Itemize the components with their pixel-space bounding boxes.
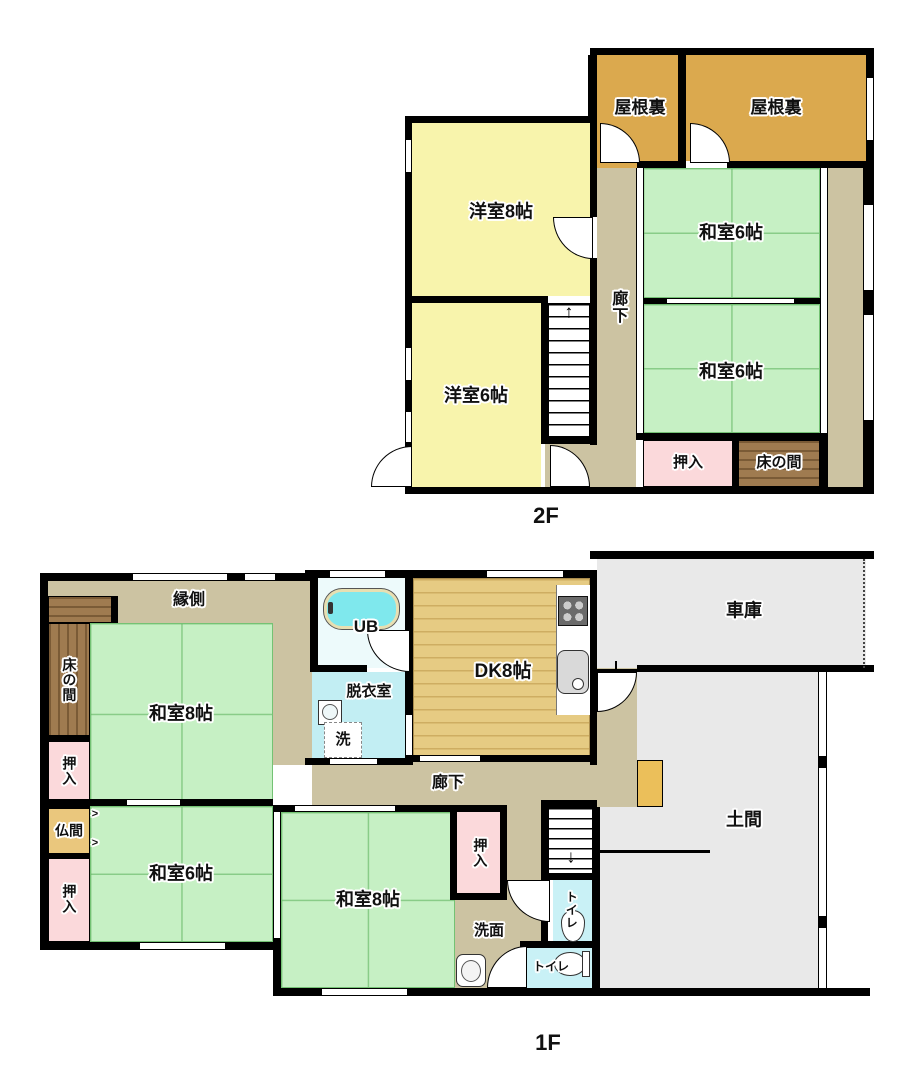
room-label-toilet-lower: トイレ xyxy=(533,961,569,974)
wall xyxy=(818,756,827,768)
room-label-washitsu6-upper: 和室6帖 xyxy=(699,224,763,243)
wall xyxy=(818,916,827,928)
corridor-connector xyxy=(273,623,312,765)
sliding-door xyxy=(820,168,828,433)
floor-label-1f: 1F xyxy=(535,1030,561,1056)
fusuma-door xyxy=(127,799,180,806)
wall xyxy=(820,433,828,494)
wall xyxy=(541,296,548,444)
wall xyxy=(450,805,507,812)
wall xyxy=(405,487,874,494)
wall xyxy=(727,161,874,168)
room-label-toilet-upper: トイレ xyxy=(565,891,578,930)
wall xyxy=(592,807,600,996)
wall xyxy=(500,805,507,900)
sliding-door xyxy=(330,758,377,765)
fusuma-door xyxy=(667,298,794,304)
floor-plan: ↑ 屋根裏 屋根裏 洋室8帖 洋室6帖 和室6帖 和室6帖 廊下 押入 床の間 … xyxy=(0,0,914,1080)
garage-open-edge xyxy=(862,559,865,668)
wall xyxy=(588,55,597,116)
room-label-laundry: 洗 xyxy=(335,732,350,748)
wall xyxy=(541,437,597,444)
staircase-2f xyxy=(548,303,590,437)
wall xyxy=(637,161,686,168)
wall xyxy=(643,298,667,304)
tokonoma-board xyxy=(48,596,112,623)
wall xyxy=(405,116,597,123)
sliding-door xyxy=(420,755,480,762)
wall xyxy=(590,578,597,765)
door-arc xyxy=(371,446,412,487)
window xyxy=(405,140,412,172)
room-label-oshiire-bottom: 押入 xyxy=(62,884,77,914)
doma-partition-line xyxy=(597,850,710,853)
wall xyxy=(310,665,367,672)
room-label-washitsu8-lower: 和室8帖 xyxy=(336,891,400,910)
wall xyxy=(450,805,457,900)
room-label-washitsu8-upper: 和室8帖 xyxy=(149,705,213,724)
fusuma-arrow: > xyxy=(92,809,98,821)
sliding-door xyxy=(295,805,395,812)
stairs-up-arrow: ↑ xyxy=(565,302,574,323)
wall xyxy=(545,873,597,880)
room-label-western6: 洋室6帖 xyxy=(444,387,508,406)
washbasin-bowl-icon xyxy=(322,704,338,720)
room-label-corridor-2f: 廊下 xyxy=(609,290,626,324)
wall xyxy=(590,258,597,445)
window xyxy=(405,412,412,442)
room-label-western8: 洋室8帖 xyxy=(469,203,533,222)
wall xyxy=(590,551,874,559)
room-label-tokonoma-2f: 床の間 xyxy=(756,455,801,471)
room-label-butsuma: 仏間 xyxy=(55,824,83,839)
sliding-door xyxy=(405,715,413,755)
senmen-bowl-icon xyxy=(461,960,481,982)
stairs-down-arrow: ↓ xyxy=(567,847,576,868)
window xyxy=(245,573,275,581)
wall xyxy=(733,440,738,494)
window xyxy=(818,672,827,988)
window xyxy=(322,988,407,996)
wall xyxy=(405,296,545,303)
room-label-oshiire-top: 押入 xyxy=(62,756,77,786)
wall xyxy=(678,55,686,161)
toilet-tank-icon xyxy=(582,951,590,977)
room-label-oshiire-hall: 押入 xyxy=(473,838,488,868)
window xyxy=(863,315,874,420)
corridor-2f-right xyxy=(828,168,863,487)
room-label-washitsu6-lower: 和室6帖 xyxy=(699,363,763,382)
doma-earthen-floor-west xyxy=(597,807,637,988)
wall xyxy=(520,941,597,948)
room-label-washitsu6-1f: 和室6帖 xyxy=(149,865,213,884)
wall xyxy=(590,48,874,55)
wall xyxy=(590,123,597,217)
room-label-senmen: 洗面 xyxy=(474,923,504,939)
room-label-oshiire-2f: 押入 xyxy=(673,455,703,471)
room-label-attic-left: 屋根裏 xyxy=(615,99,666,117)
room-label-attic-right: 屋根裏 xyxy=(751,99,802,117)
wall xyxy=(450,893,507,900)
wall xyxy=(794,298,822,304)
room-label-corridor-1f: 廊下 xyxy=(432,776,464,793)
room-label-tokonoma-1f: 床の間 xyxy=(62,658,77,703)
window xyxy=(330,570,385,578)
wall xyxy=(40,735,90,741)
wall xyxy=(40,573,48,950)
room-label-dk: DK8帖 xyxy=(474,662,531,682)
doma-earthen-floor xyxy=(637,672,818,988)
room-label-garage: 車庫 xyxy=(726,602,762,621)
wall xyxy=(310,578,318,672)
kitchen-sink-drain-icon xyxy=(572,678,584,690)
window xyxy=(863,205,874,290)
wall xyxy=(636,433,822,440)
stove-icon xyxy=(558,596,588,626)
window xyxy=(866,78,874,140)
fusuma-arrow: > xyxy=(92,838,98,850)
room-label-unit-bath: UB xyxy=(354,618,379,636)
window xyxy=(133,573,227,581)
corridor-2f xyxy=(597,168,636,487)
window xyxy=(405,348,412,380)
wall xyxy=(637,665,874,672)
wall xyxy=(112,596,118,623)
wall xyxy=(541,800,597,807)
room-label-datsuiishitsu: 脱衣室 xyxy=(346,684,391,700)
room-label-engawa: 縁側 xyxy=(173,593,205,610)
room-label-doma: 土間 xyxy=(726,811,762,830)
window xyxy=(487,570,563,578)
floor-label-2f: 2F xyxy=(533,503,559,529)
wall xyxy=(40,853,90,858)
faucet-icon xyxy=(328,602,333,614)
window xyxy=(140,942,225,950)
sliding-door xyxy=(273,812,281,938)
entry-step xyxy=(637,760,663,807)
